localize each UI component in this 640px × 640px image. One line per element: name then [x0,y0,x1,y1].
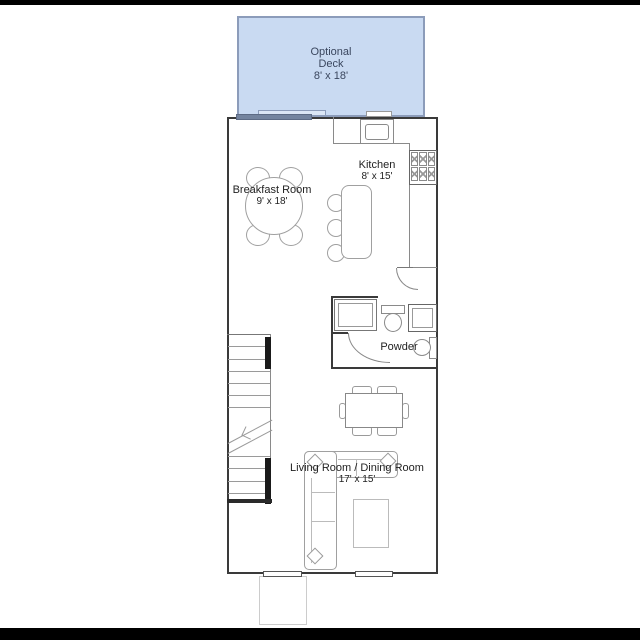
stair-tread [228,407,270,408]
sofa-cushion-divider [312,521,335,522]
powder-name: Powder [373,341,425,353]
kitchen-sink-ledge [366,111,392,117]
powder-wall-bottom [331,367,438,369]
burner-icon [428,152,435,166]
floorplan-canvas: Optional Deck 8' x 18' [0,0,640,640]
deck-label-line1: Optional [239,46,423,58]
deck-dimensions: 8' x 18' [239,70,423,82]
breakfast-room-label: Breakfast Room 9' x 18' [211,184,333,208]
kitchen-name: Kitchen [341,159,413,171]
stove-icon [409,150,437,185]
counter-edge-left [333,117,334,143]
kitchen-dims: 8' x 15' [341,171,413,183]
kitchen-label: Kitchen 8' x 15' [341,159,413,183]
coffee-table [353,499,389,548]
stair-tread [228,456,270,457]
powder-vanity-inner [338,303,373,327]
living-room-name: Living Room / Dining Room [288,462,426,474]
powder-door-jamb [331,332,348,334]
toilet-icon [384,313,402,332]
burner-icon [419,152,426,166]
stair-tread [228,346,270,347]
sofa-cushion-divider [312,492,335,493]
window-symbol [263,571,302,577]
breakfast-room-dims: 9' x 18' [211,196,333,208]
living-room-dims: 17' x 15' [288,474,426,486]
stair-tread [228,481,270,482]
deck-label: Optional Deck 8' x 18' [239,46,423,82]
deck-label-line2: Deck [239,58,423,70]
burner-row [411,152,435,166]
kitchen-sink-basin [365,124,389,140]
dining-chair-icon [402,403,409,419]
stair-tread [228,493,270,494]
stairs-top-edge [227,334,271,335]
burner-row [411,167,435,181]
stair-tread [228,468,270,469]
powder-wall-top [331,296,378,298]
breakfast-room-name: Breakfast Room [211,184,333,196]
entry-stoop [259,576,307,625]
stair-handrail [265,337,271,369]
living-room-label: Living Room / Dining Room 17' x 15' [288,462,426,486]
window-symbol [355,571,393,577]
letterbox-top [0,0,640,5]
letterbox-bottom [0,628,640,640]
stairs-bottom-wall [227,499,272,503]
deck-area: Optional Deck 8' x 18' [237,16,425,117]
burner-icon [428,167,435,181]
stair-tread [228,359,270,360]
powder-label: Powder [373,341,425,353]
stair-tread [228,383,270,384]
stair-handrail [265,458,271,504]
dining-table [345,393,403,428]
sliding-door-panel-inner [236,114,312,120]
burner-icon [419,167,426,181]
stair-tread [228,371,270,372]
kitchen-island [341,185,372,259]
powder-cabinet-inner [412,308,433,328]
stair-tread [228,395,270,396]
